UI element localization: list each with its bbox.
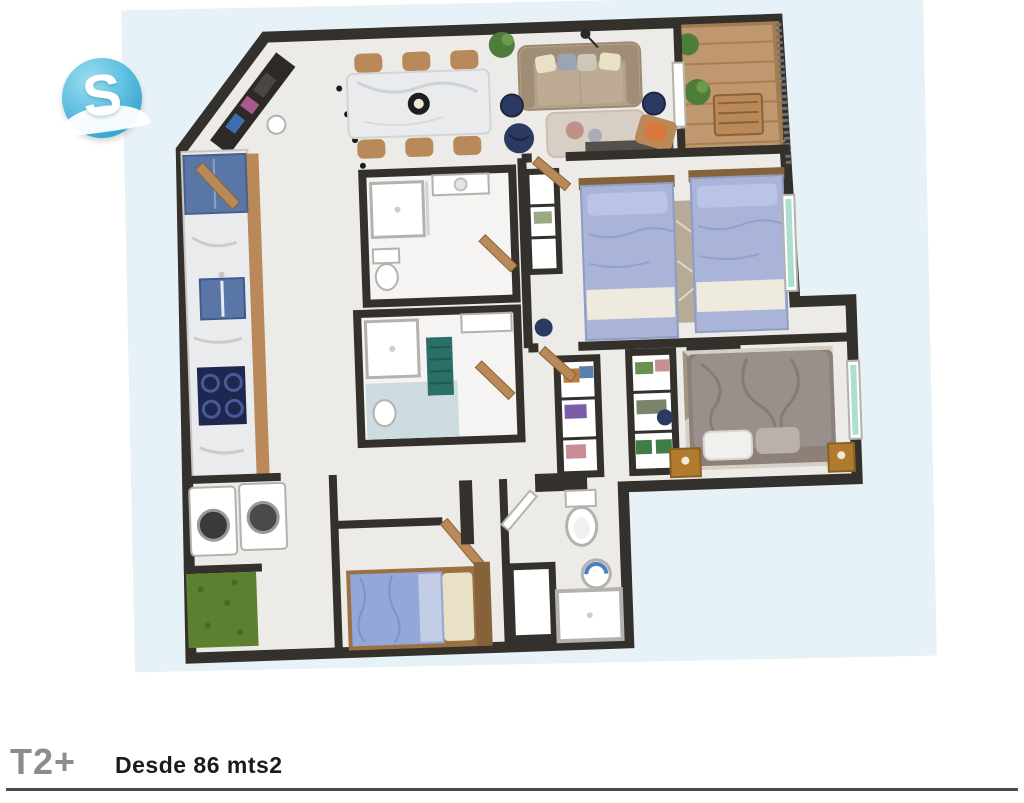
brochure-page: S →	[0, 0, 1024, 803]
blanket	[696, 279, 785, 312]
pillow	[587, 191, 668, 216]
single-bed	[346, 562, 493, 651]
desk-chair	[267, 115, 286, 134]
sofa-pillow	[599, 52, 622, 71]
floorplan-image	[115, 0, 948, 682]
turf-patch	[186, 572, 259, 648]
unit-area-label: Desde 86 mts2	[115, 752, 283, 779]
sofa-pillow	[577, 54, 597, 72]
headboard	[474, 562, 493, 647]
dining-chair	[453, 136, 482, 156]
pillow	[703, 430, 752, 460]
dining-table	[346, 49, 492, 159]
toilet	[373, 400, 396, 427]
unit-type-label: T2+	[10, 741, 76, 783]
side-table	[643, 92, 666, 115]
dining-chair	[354, 53, 383, 73]
logo-letter: S	[80, 65, 125, 127]
blanket	[586, 287, 675, 320]
pillow	[442, 572, 474, 641]
cooktop	[197, 366, 247, 426]
dining-chair	[405, 137, 434, 157]
pillow	[418, 573, 442, 642]
dining-chair	[450, 50, 479, 70]
dining-chair	[402, 51, 431, 71]
bathroom-1	[362, 169, 518, 304]
wall-stub	[459, 480, 474, 544]
footer-divider	[6, 788, 1018, 791]
shower-glass	[427, 182, 429, 236]
towel-rack	[426, 337, 454, 396]
toilet	[375, 264, 398, 291]
sink	[454, 178, 466, 190]
bathroom-2	[357, 308, 521, 444]
dining-chair	[357, 139, 386, 159]
single-bed	[578, 175, 680, 340]
dryer-door	[248, 502, 279, 533]
balcony-sliding-door	[673, 63, 686, 127]
vanity	[461, 313, 512, 333]
sofa-pillow	[534, 54, 557, 74]
pillow	[697, 183, 778, 208]
room-master-bedroom	[539, 336, 863, 482]
sofa	[518, 42, 642, 110]
shower-niche	[510, 565, 554, 638]
pillow	[755, 427, 800, 455]
single-bed	[688, 167, 790, 332]
side-table	[501, 94, 524, 117]
door-header	[535, 472, 588, 492]
balcony-bench	[714, 94, 763, 136]
master-bed	[687, 349, 837, 466]
sofa-pillow	[557, 53, 577, 71]
washer-door	[198, 510, 229, 541]
